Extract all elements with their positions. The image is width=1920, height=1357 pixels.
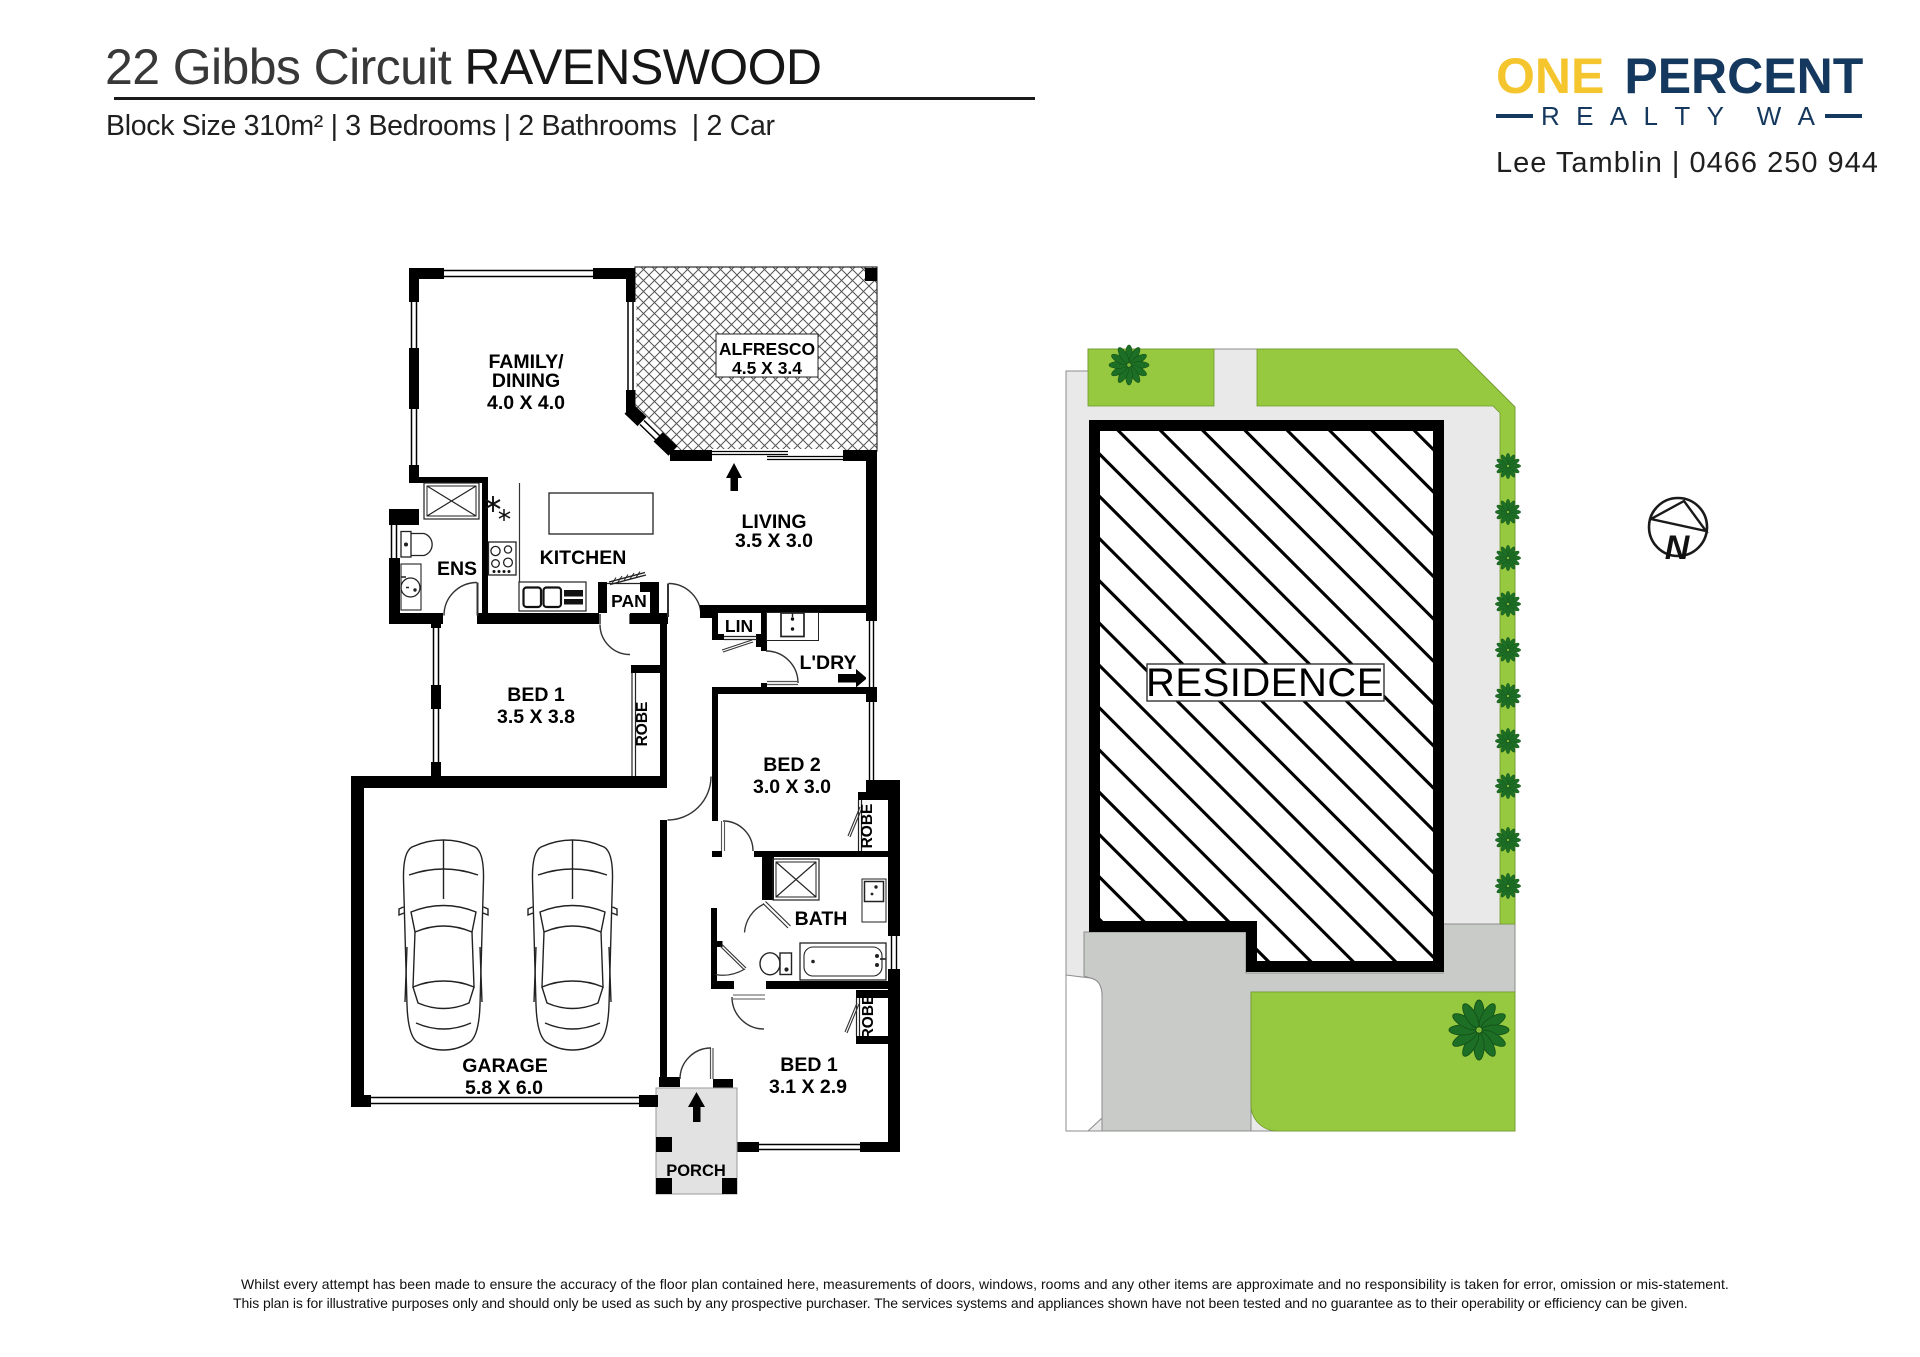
svg-text:3.0 X 3.0: 3.0 X 3.0 bbox=[753, 776, 831, 798]
svg-text:ALFRESCO: ALFRESCO bbox=[719, 339, 815, 359]
svg-text:PORCH: PORCH bbox=[666, 1162, 726, 1180]
svg-text:ROBE: ROBE bbox=[860, 995, 877, 1040]
svg-text:DINING: DINING bbox=[492, 370, 560, 392]
svg-text:BED 1: BED 1 bbox=[780, 1054, 838, 1076]
svg-text:BED 2: BED 2 bbox=[763, 754, 821, 776]
svg-text:RESIDENCE: RESIDENCE bbox=[1146, 661, 1384, 705]
svg-text:GARAGE: GARAGE bbox=[462, 1055, 548, 1077]
svg-text:BED 1: BED 1 bbox=[507, 684, 565, 706]
svg-text:ROBE: ROBE bbox=[634, 702, 651, 747]
svg-text:3.5 X 3.8: 3.5 X 3.8 bbox=[497, 706, 575, 728]
svg-text:LIN: LIN bbox=[725, 616, 753, 636]
svg-text:BATH: BATH bbox=[795, 908, 848, 930]
svg-text:N: N bbox=[1665, 529, 1691, 567]
svg-text:PAN: PAN bbox=[611, 591, 647, 611]
svg-text:3.5 X 3.0: 3.5 X 3.0 bbox=[735, 530, 813, 552]
svg-text:KITCHEN: KITCHEN bbox=[540, 547, 627, 569]
svg-text:4.0 X 4.0: 4.0 X 4.0 bbox=[487, 392, 565, 414]
svg-text:3.1 X 2.9: 3.1 X 2.9 bbox=[769, 1076, 847, 1098]
svg-text:ROBE: ROBE bbox=[859, 804, 876, 849]
svg-text:5.8 X 6.0: 5.8 X 6.0 bbox=[465, 1077, 543, 1099]
svg-text:ENS: ENS bbox=[437, 558, 477, 580]
svg-text:L'DRY: L'DRY bbox=[800, 652, 857, 674]
svg-text:4.5 X 3.4: 4.5 X 3.4 bbox=[732, 358, 802, 378]
